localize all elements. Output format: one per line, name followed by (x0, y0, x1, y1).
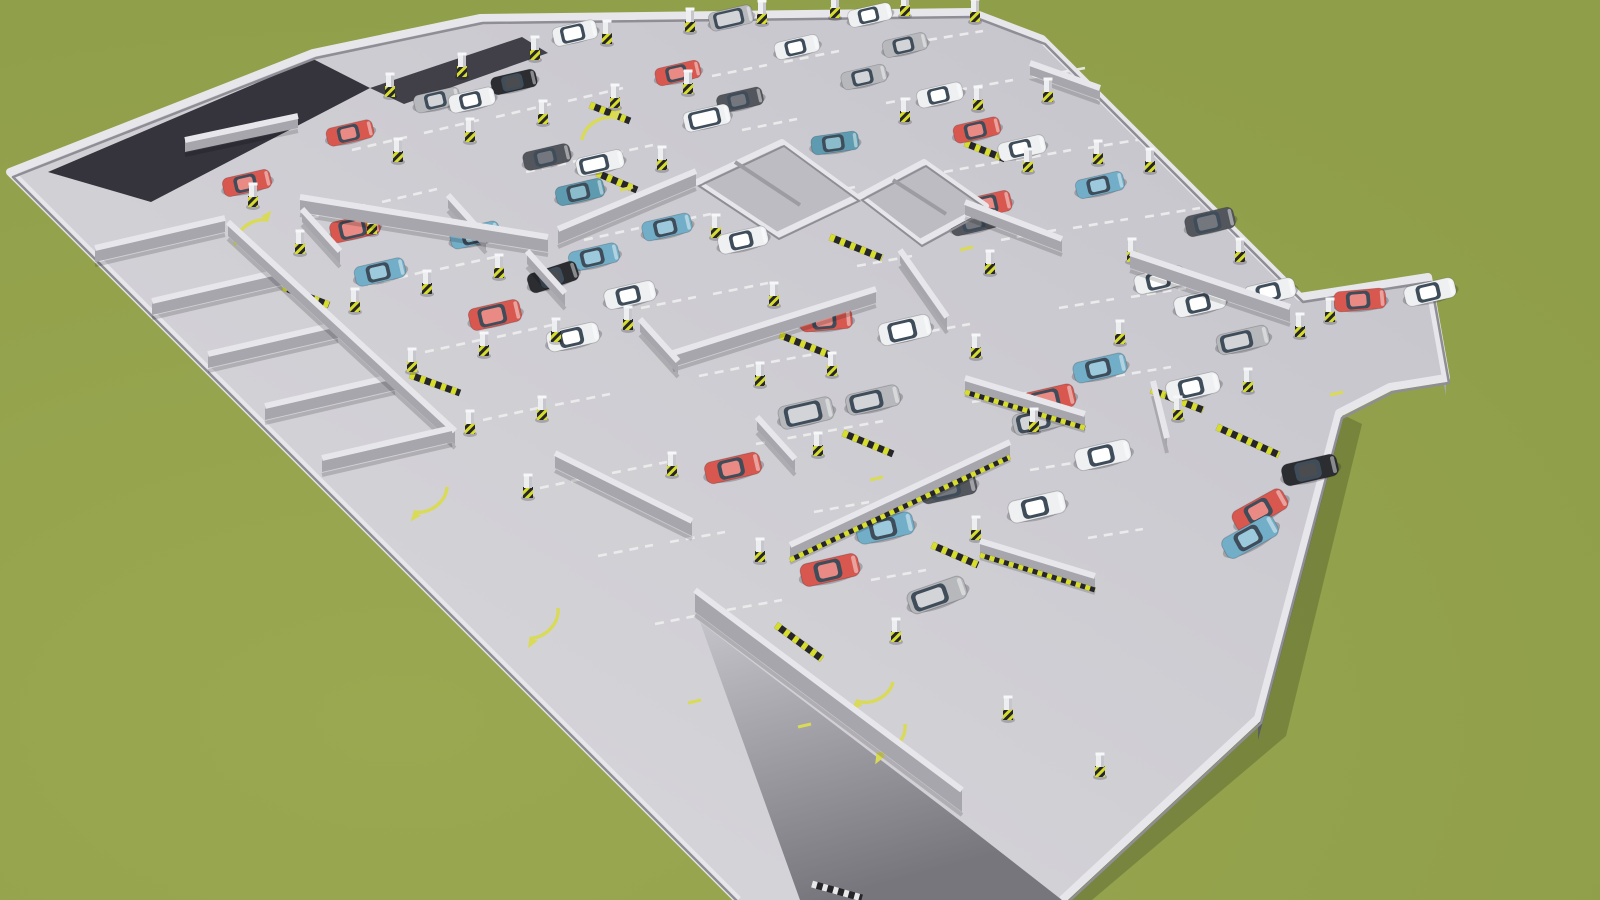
pillar-post-shade (1331, 299, 1334, 312)
pillar-cap (408, 348, 417, 351)
pillar-post-shade (897, 619, 900, 632)
pillar-cap (1030, 408, 1039, 411)
pillar-cap (1024, 148, 1033, 151)
pillar-post-shade (1035, 409, 1038, 422)
pillar-cap (466, 118, 475, 121)
pillar-post-shade (775, 283, 778, 296)
pillar-post-shade (663, 147, 666, 160)
pillar-cap (901, 98, 910, 101)
pillar-post-shade (1249, 369, 1252, 382)
pillar-hazard-base (538, 113, 548, 124)
pillar-post-shade (471, 411, 474, 424)
pillar-cap (351, 288, 360, 291)
pillar-cap (611, 84, 620, 87)
pillar-hazard-base (900, 111, 910, 122)
pillar-hazard-base (1095, 766, 1105, 777)
pillar-cap (538, 396, 547, 399)
pillar-post-shade (1029, 149, 1032, 162)
pillar-cap (758, 0, 767, 3)
pillar-hazard-base (757, 13, 767, 24)
pillar-post-shade (689, 71, 692, 84)
pillar-post-shade (254, 184, 257, 197)
pillar-hazard-base (465, 131, 475, 142)
pillar-cap (892, 618, 901, 621)
pillar-hazard-base (623, 319, 633, 330)
pillar-post-shade (833, 353, 836, 366)
pillar-hazard-base (1243, 381, 1253, 392)
pillar-hazard-base (523, 487, 533, 498)
pillar-hazard-base (248, 196, 258, 207)
pillar-post-shade (399, 139, 402, 152)
pillar-cap (1096, 753, 1105, 756)
pillar-post-shade (500, 255, 503, 268)
pillar-cap (531, 36, 540, 39)
pillar-cap (423, 270, 432, 273)
pillar-hazard-base (610, 97, 620, 108)
pillar-hazard-base (1173, 409, 1183, 420)
pillar-post-shade (301, 231, 304, 244)
pillar-post-shade (763, 1, 766, 14)
pillar-cap (466, 410, 475, 413)
pillar-post-shade (1179, 397, 1182, 410)
pillar-post-shade (761, 539, 764, 552)
pillar-post-shade (485, 333, 488, 346)
pillar-cap (972, 334, 981, 337)
pillar-post-shade (717, 215, 720, 228)
pillar-cap (770, 282, 779, 285)
pillar-post-shade (629, 307, 632, 320)
pillar-hazard-base (769, 295, 779, 306)
pillar-hazard-base (900, 5, 910, 16)
pillar-cap (603, 20, 612, 23)
pillar-hazard-base (457, 66, 467, 77)
pillar-hazard-base (755, 551, 765, 562)
pillar-cap (668, 452, 677, 455)
pillar-hazard-base (385, 86, 395, 97)
pillar-hazard-base (971, 529, 981, 540)
pillar-post-shade (906, 0, 909, 6)
pillar-cap (394, 138, 403, 141)
pillar-hazard-base (1115, 333, 1125, 344)
pillar-hazard-base (891, 631, 901, 642)
pillar-cap (386, 73, 395, 76)
pillar-hazard-base (1023, 161, 1033, 172)
pillar-hazard-base (350, 301, 360, 312)
pillar-cap (249, 183, 258, 186)
pillar-hazard-base (1235, 251, 1245, 262)
pillar-post-shade (428, 271, 431, 284)
pillar-hazard-base (602, 33, 612, 44)
pillar-post-shade (471, 119, 474, 132)
pillar-cap (814, 432, 823, 435)
pillar-hazard-base (827, 365, 837, 376)
pillar-post-shade (1301, 314, 1304, 327)
pillar-cap (684, 70, 693, 73)
pillar-post-shade (1099, 141, 1102, 154)
pillar-post-shade (977, 517, 980, 530)
pillar-hazard-base (393, 151, 403, 162)
pillar-hazard-base (985, 263, 995, 274)
pillar-hazard-base (407, 361, 417, 372)
pillar-post-shade (1101, 754, 1104, 767)
pillar-cap (524, 474, 533, 477)
pillar-post-shade (761, 363, 764, 376)
pillar-hazard-base (530, 49, 540, 60)
pillar-hazard-base (422, 283, 432, 294)
pillar-post-shade (976, 0, 979, 12)
pillar-post-shade (991, 251, 994, 264)
pillar-hazard-base (971, 347, 981, 358)
pillar-cap (495, 254, 504, 257)
pillar-hazard-base (551, 331, 561, 342)
parking-garage-3d-render (0, 0, 1600, 900)
pillar-post-shade (391, 74, 394, 87)
pillar-cap (756, 362, 765, 365)
pillar-post-shade (1009, 697, 1012, 710)
pillar-cap (971, 0, 980, 1)
pillar-cap (686, 8, 695, 11)
pillar-post-shade (1133, 239, 1136, 252)
pillar-hazard-base (813, 445, 823, 456)
pillar-cap (972, 516, 981, 519)
pillar-post-shade (463, 54, 466, 67)
pillar-cap (539, 100, 548, 103)
pillar-cap (1244, 368, 1253, 371)
pillar-hazard-base (1043, 91, 1053, 102)
pillar-hazard-base (685, 21, 695, 32)
pillar-cap (658, 146, 667, 149)
pillar-post-shade (673, 453, 676, 466)
pillar-cap (1296, 313, 1305, 316)
pillar-post-shade (356, 289, 359, 302)
car-roof (1349, 293, 1367, 306)
pillar-post-shade (529, 475, 532, 488)
pillar-hazard-base (494, 267, 504, 278)
pillar-cap (1146, 148, 1155, 151)
pillar-post-shade (1151, 149, 1154, 162)
pillar-post-shade (608, 21, 611, 34)
pillar-cap (1116, 320, 1125, 323)
pillar-hazard-base (973, 99, 983, 110)
pillar-post-shade (691, 9, 694, 22)
pillar-cap (480, 332, 489, 335)
pillar-cap (1174, 396, 1183, 399)
pillar-cap (756, 538, 765, 541)
pillar-hazard-base (1325, 311, 1335, 322)
pillar-post-shade (906, 99, 909, 112)
pillar-hazard-base (465, 423, 475, 434)
pillar-hazard-base (755, 375, 765, 386)
pillar-cap (828, 352, 837, 355)
pillar-post-shade (1049, 79, 1052, 92)
pillar-cap (296, 230, 305, 233)
pillar-hazard-base (667, 465, 677, 476)
pillar-cap (1094, 140, 1103, 143)
pillar-hazard-base (683, 83, 693, 94)
pillar-post-shade (1241, 239, 1244, 252)
pillar-post-shade (557, 319, 560, 332)
pillar-hazard-base (1003, 709, 1013, 720)
pillar-cap (1236, 238, 1245, 241)
pillar-hazard-base (1145, 161, 1155, 172)
pillar-cap (974, 86, 983, 89)
pillar-cap (624, 306, 633, 309)
pillar-hazard-base (1295, 326, 1305, 337)
pillar-cap (1128, 238, 1137, 241)
pillar-cap (1326, 298, 1335, 301)
pillar-hazard-base (970, 11, 980, 22)
pillar-cap (458, 53, 467, 56)
pillar-hazard-base (830, 7, 840, 18)
pillar-hazard-base (657, 159, 667, 170)
pillar-post-shade (616, 85, 619, 98)
pillar-hazard-base (1093, 153, 1103, 164)
pillar-post-shade (1121, 321, 1124, 334)
pillar-hazard-base (1029, 421, 1039, 432)
pillar-post-shade (979, 87, 982, 100)
pillar-post-shade (536, 37, 539, 50)
pillar-cap (1044, 78, 1053, 81)
pillar-post-shade (544, 101, 547, 114)
render-viewport (0, 0, 1600, 900)
pillar-cap (986, 250, 995, 253)
pillar-cap (712, 214, 721, 217)
car-roof (825, 137, 842, 150)
pillar-hazard-base (295, 243, 305, 254)
pillar-hazard-base (537, 409, 547, 420)
pillar-hazard-base (479, 345, 489, 356)
pillar-post-shade (836, 0, 839, 8)
pillar-post-shade (819, 433, 822, 446)
pillar-post-shade (413, 349, 416, 362)
pillar-post-shade (543, 397, 546, 410)
pillar-cap (1004, 696, 1013, 699)
pillar-cap (552, 318, 561, 321)
pillar-post-shade (977, 335, 980, 348)
